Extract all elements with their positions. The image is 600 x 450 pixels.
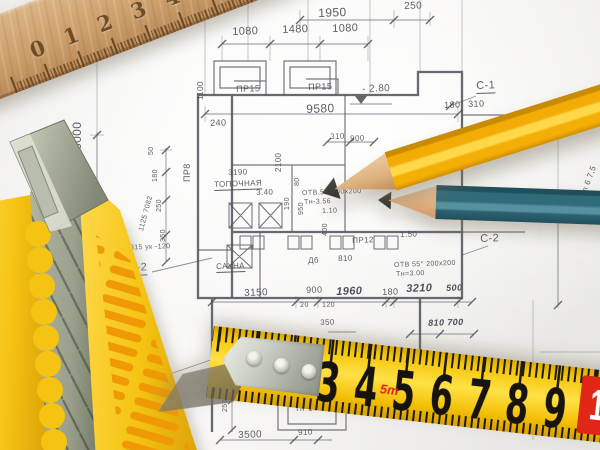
- tape-rivet: [301, 363, 318, 380]
- ruler-number: 3: [127, 0, 150, 24]
- tape-rivet: [246, 350, 263, 367]
- ruler-number: 1: [60, 22, 83, 51]
- tape-unit-label: 5m: [379, 381, 399, 398]
- ruler-number: 2: [94, 9, 117, 38]
- teal-pencil-body: [435, 185, 600, 225]
- ruler-number: 0: [26, 35, 49, 64]
- tape-decimeter-number: 10: [586, 380, 600, 433]
- photo-scene: 1950250108014801080ПР15ПР15- 2.809580С-1…: [0, 0, 600, 450]
- blueprint-fixtures: [227, 203, 398, 268]
- blueprint-level-mark: [355, 96, 367, 104]
- tape-rivet: [273, 357, 290, 374]
- ruler-number: 4: [161, 0, 184, 12]
